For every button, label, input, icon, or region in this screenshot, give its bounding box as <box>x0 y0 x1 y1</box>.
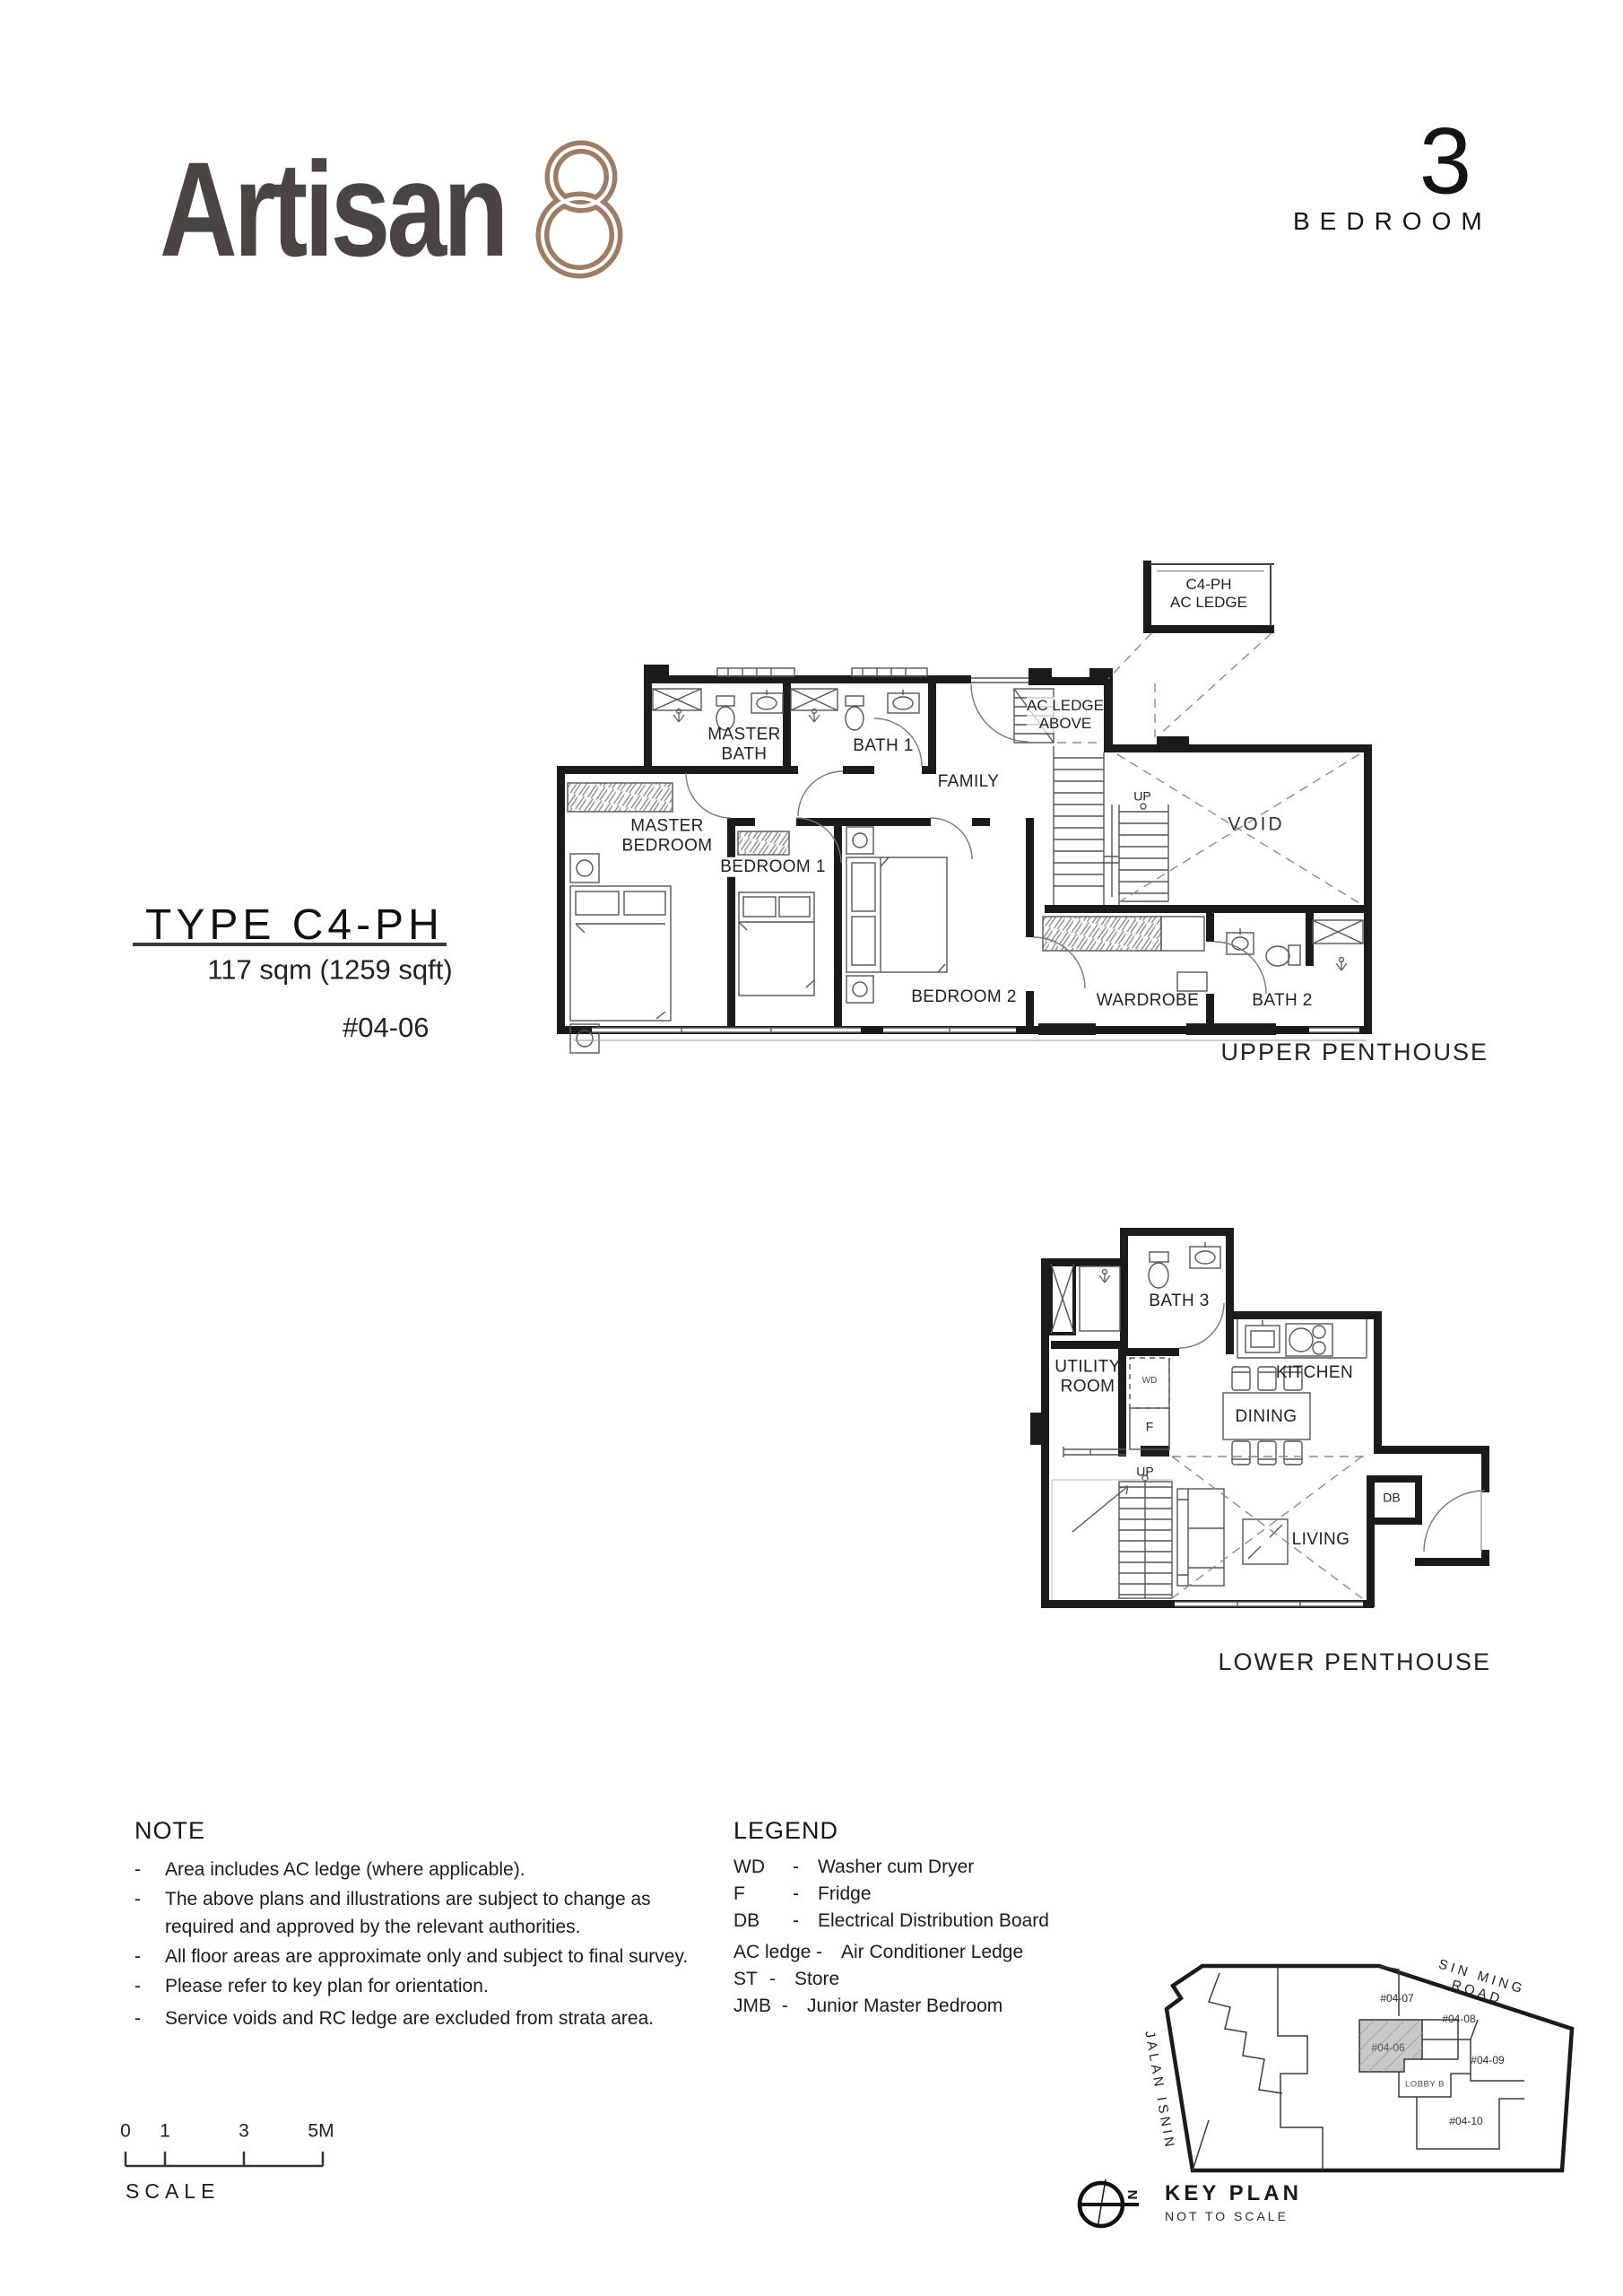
keyplan-unit-04-06-highlighted: #04-06 <box>1371 2041 1404 2054</box>
lower-plan-dashed <box>1172 1457 1364 1598</box>
upper-plan-caption: UPPER PENTHOUSE <box>1220 1039 1488 1066</box>
type-underline <box>133 943 447 946</box>
lower-plan-caption: LOWER PENTHOUSE <box>1218 1648 1491 1676</box>
brand-logo: Artisan <box>160 142 592 276</box>
keyplan-lobby-b: LOBBY B <box>1405 2079 1445 2089</box>
note-item: -All floor areas are approximate only an… <box>135 1943 780 1970</box>
note-title: NOTE <box>135 1817 780 1845</box>
room-label-living: LIVING <box>1292 1530 1350 1550</box>
scale-tick-1: 1 <box>160 2121 170 2144</box>
key-plan-subtitle: NOT TO SCALE <box>1165 2209 1289 2223</box>
note-item: -Area includes AC ledge (where applicabl… <box>135 1856 780 1883</box>
room-label-kitchen: KITCHEN <box>1276 1363 1353 1383</box>
legend-row: ST-Store <box>733 1966 1110 1993</box>
db-label: DB <box>1383 1491 1400 1506</box>
keyplan-unit-04-08: #04-08 <box>1442 2013 1475 2025</box>
room-label-void: VOID <box>1228 814 1284 837</box>
washer-dryer-label: WD <box>1142 1376 1158 1387</box>
room-label-bedroom1: BEDROOM 1 <box>720 857 826 877</box>
key-plan-title: KEY PLAN <box>1165 2181 1302 2206</box>
keyplan-unit-04-10: #04-10 <box>1449 2115 1482 2127</box>
room-label-bedroom2: BEDROOM 2 <box>911 987 1017 1007</box>
note-item: -Service voids and RC ledge are excluded… <box>135 2005 780 2032</box>
stairs-up-label-lower: UP <box>1136 1465 1153 1480</box>
room-label-bath1: BATH 1 <box>853 736 914 756</box>
legend-title: LEGEND <box>733 1817 1110 1845</box>
room-label-ac-ledge-box: C4-PH AC LEDGE <box>1170 576 1247 612</box>
floor-plan-page: Artisan 3 BEDROOM TYPE C4-PH 117 sqm (12… <box>0 0 1623 2296</box>
room-label-dining: DINING <box>1236 1407 1298 1427</box>
scale-tick-5m: 5M <box>308 2121 334 2144</box>
room-label-wardrobe: WARDROBE <box>1097 991 1199 1011</box>
keyplan-unit-04-07: #04-07 <box>1380 1992 1413 2005</box>
room-label-bath2: BATH 2 <box>1252 991 1313 1011</box>
room-label-master-bath: MASTER BATH <box>707 726 781 766</box>
note-item: -The above plans and illustrations are s… <box>135 1885 780 1941</box>
stairs-up-label-upper: UP <box>1133 789 1150 804</box>
room-label-bath3: BATH 3 <box>1149 1291 1210 1311</box>
type-area: 117 sqm (1259 sqft) <box>207 954 452 987</box>
scale-word: SCALE <box>126 2179 220 2204</box>
room-label-family: FAMILY <box>938 772 1000 792</box>
note-item: -Please refer to key plan for orientatio… <box>135 1972 780 2000</box>
bedroom-count: 3 <box>1419 115 1471 209</box>
north-arrow-icon <box>1078 2179 1139 2228</box>
room-label-ac-ledge-above: AC LEDGE ABOVE <box>1027 697 1104 733</box>
legend-row: F-Fridge <box>733 1881 1110 1908</box>
upper-plan-walls <box>557 561 1372 1035</box>
room-label-master-bedroom: MASTER BEDROOM <box>622 817 713 857</box>
scale-bar-icon <box>126 2152 323 2166</box>
legend-row: WD-Washer cum Dryer <box>733 1854 1110 1881</box>
north-label: N <box>1124 2190 1140 2200</box>
note-section: NOTE -Area includes AC ledge (where appl… <box>135 1817 780 2034</box>
type-unit-number: #04-06 <box>343 1012 430 1044</box>
legend-row: DB-Electrical Distribution Board <box>733 1908 1110 1935</box>
legend-section: LEGEND WD-Washer cum Dryer F-Fridge DB-E… <box>733 1817 1110 2020</box>
room-label-utility: UTILITY ROOM <box>1055 1358 1121 1398</box>
keyplan-unit-04-09: #04-09 <box>1471 2054 1504 2066</box>
brand-wordmark: Artisan <box>160 142 505 276</box>
scale-tick-0: 0 <box>120 2121 131 2144</box>
scale-tick-3: 3 <box>239 2121 249 2144</box>
legend-row: JMB-Junior Master Bedroom <box>733 1993 1110 2020</box>
legend-row: AC ledge-Air Conditioner Ledge <box>733 1939 1110 1966</box>
fridge-label: F <box>1146 1420 1154 1435</box>
bedroom-word: BEDROOM <box>1293 207 1492 236</box>
